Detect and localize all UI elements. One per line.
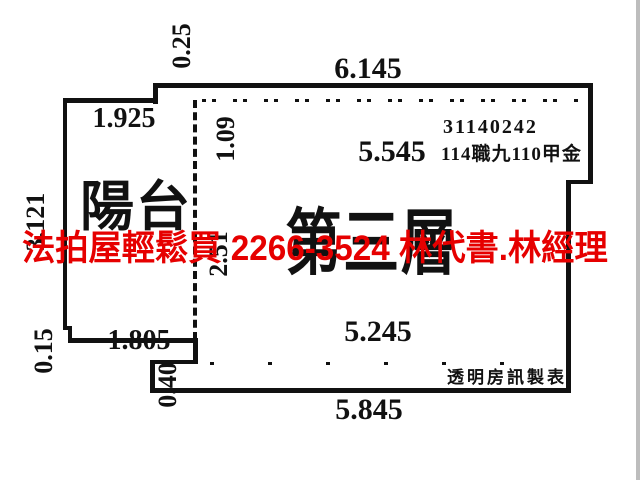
dim-interior-bottom: 5.245 — [318, 317, 438, 347]
dim-top-width: 6.145 — [308, 54, 428, 84]
dim-top-offset: 0.25 — [169, 6, 195, 86]
watermark-text: 法拍屋輕鬆買 2266-3524 林代書.林經理 — [22, 220, 608, 271]
registration-number: 31140242 — [443, 116, 538, 139]
window-dotted-line-top — [202, 99, 584, 102]
producer-label: 透明房訊製表 — [447, 363, 597, 388]
wall-right-lower — [566, 180, 571, 393]
dim-interior-width: 5.545 — [332, 137, 452, 167]
dim-balcony-bottom: 1.805 — [79, 327, 199, 355]
floor-plan: 6.145 1.925 5.545 5.245 5.845 1.805 0.25… — [0, 0, 640, 480]
scan-edge-line — [636, 0, 640, 480]
dim-bottom-width: 5.845 — [309, 395, 429, 425]
dim-bottom-step: 0.40 — [155, 345, 181, 425]
dim-left-lower: 0.15 — [31, 311, 57, 391]
registration-info: 114職九110甲金 — [441, 139, 582, 166]
dim-top-inset: 1.09 — [213, 99, 239, 179]
dim-balcony-top: 1.925 — [64, 105, 184, 133]
wall-right-upper — [588, 83, 593, 184]
